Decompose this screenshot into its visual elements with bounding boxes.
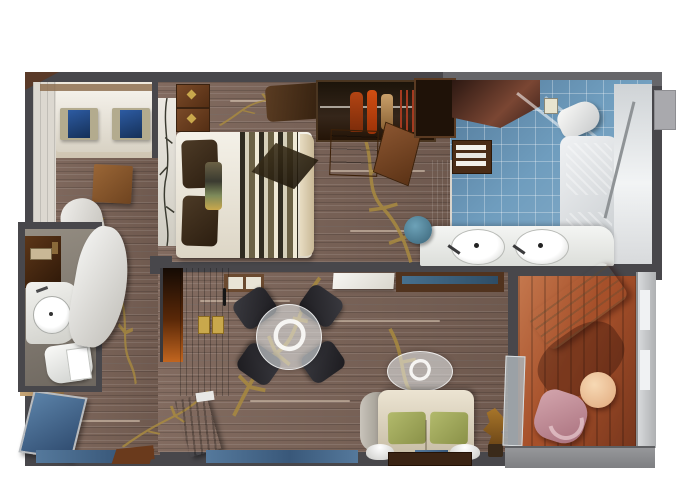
hanging-garment-red [367,90,377,134]
hanger-stick [406,90,408,132]
window-sill-wood [112,449,155,464]
side-table [92,164,133,204]
balcony-glass-door [502,356,525,447]
sofa-seam [425,420,427,452]
window-pane [206,450,358,463]
headboard-art-branches [158,98,176,246]
dining-table-squiggle [266,314,310,358]
ceiling-trim [40,84,152,91]
patio-table [580,372,616,408]
vanity-bottles [30,248,52,260]
railing-slat [640,350,650,390]
guest-sink-drain [49,312,53,316]
wardrobe-side-cabinet [414,78,456,138]
towel [456,161,486,166]
hanging-garment-orange [350,92,363,132]
coffee-table-squiggle [399,356,439,385]
sofa-window-rug [388,452,472,466]
vanity-stool [404,216,432,244]
sofa-cushion-green [388,412,427,445]
floor-plan-render [0,0,680,486]
door-handle [223,288,226,306]
balcony-deck-edge [505,446,655,468]
towel [456,145,486,150]
closet-doors [33,82,56,228]
sink-drain [474,243,479,248]
sofa-cushion-green [430,412,469,445]
daybed-pillow-blue-center [120,110,142,138]
door-gold-plate [212,316,224,334]
plant-pot [488,444,503,457]
guest-toilet-tank [66,347,92,382]
wardrobe-drawer-unit [329,129,379,177]
hanger-stick [400,90,402,132]
bed-bolster [205,162,222,210]
daybed-pillow-blue-center [68,110,90,138]
towel [456,153,486,158]
bath-shelf-item [544,98,558,114]
sink-drain [538,243,543,248]
exterior-wall-tab [654,90,676,130]
sideboard-blue-glass [402,276,498,284]
window-pane [36,450,118,463]
bed-foot-fold [300,134,314,256]
tub-water [566,143,612,195]
vanity-bottle [52,242,58,254]
white-console [332,273,394,289]
floor-streak [330,320,440,322]
railing-slat [640,290,650,330]
door-gold-plate [198,316,210,334]
